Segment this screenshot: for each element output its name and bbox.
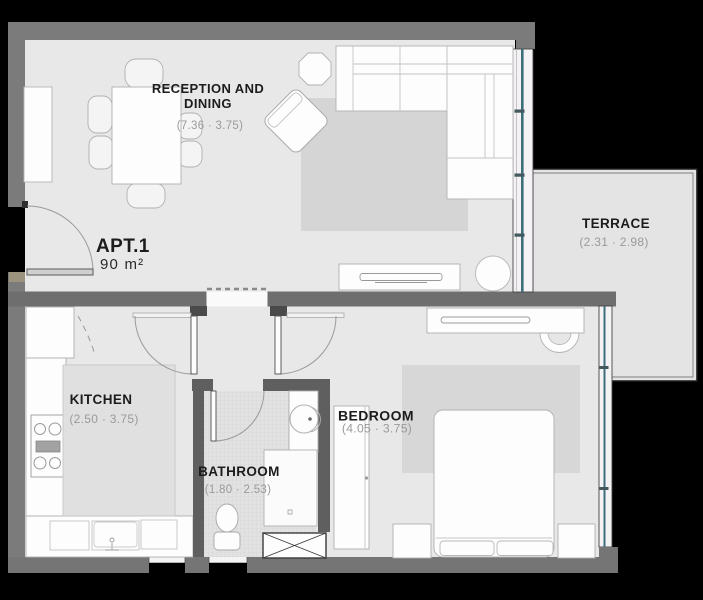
svg-text:KITCHEN: KITCHEN (70, 392, 133, 407)
svg-text:TERRACE: TERRACE (582, 216, 650, 231)
svg-text:(1.80 · 2.53): (1.80 · 2.53) (205, 484, 272, 496)
svg-text:90 m²: 90 m² (100, 256, 144, 273)
svg-text:DINING: DINING (184, 96, 232, 111)
svg-text:RECEPTION AND: RECEPTION AND (152, 81, 264, 96)
svg-text:BATHROOM: BATHROOM (198, 464, 280, 479)
svg-text:APT.1: APT.1 (96, 236, 150, 257)
svg-text:(2.50 · 3.75): (2.50 · 3.75) (69, 412, 138, 426)
svg-text:(2.31 · 2.98): (2.31 · 2.98) (579, 235, 648, 249)
svg-text:(4.05 · 3.75): (4.05 · 3.75) (342, 422, 412, 436)
svg-text:(7.36 · 3.75): (7.36 · 3.75) (177, 120, 244, 132)
